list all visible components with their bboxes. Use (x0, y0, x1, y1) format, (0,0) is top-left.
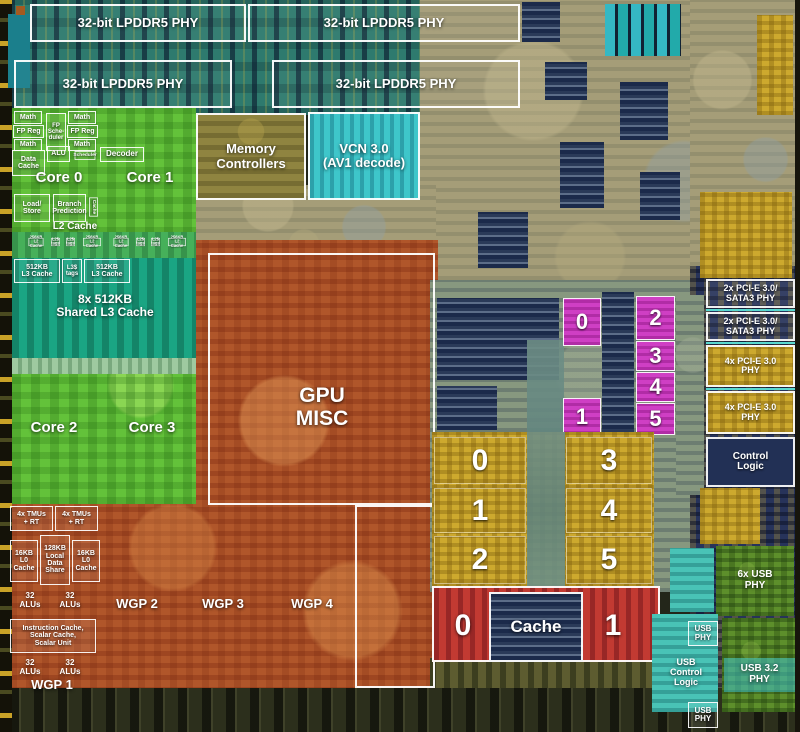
alus-label: 32 ALUs (54, 590, 86, 612)
pcie-phy-box-1: 4x PCI-E 3.0 PHY (706, 345, 795, 387)
lds-chip: 128KB Local Data Share (40, 535, 70, 585)
core0-label: Core 0 (28, 168, 90, 188)
lpddr5-phy-label-2: 32-bit LPDDR5 PHY (248, 4, 520, 42)
right-edge-strip (795, 0, 800, 732)
tmus-chip: 4x TMUs + RT (55, 506, 98, 531)
fpu-math-chip: Math (14, 111, 42, 124)
pink-gap-stripes (602, 292, 634, 438)
cu-pink-3: 3 (636, 341, 675, 371)
gold-block-right (700, 192, 792, 278)
scheduler-chip: Scheduler (75, 151, 96, 160)
gpu-cache-label: Cache (489, 592, 583, 662)
wgp3-label: WGP 3 (198, 596, 248, 612)
usb-phy-bottom-chip: USB PHY (688, 702, 718, 728)
shared-l3-label: 8x 512KB Shared L3 Cache (35, 290, 175, 322)
branch-prediction-chip: Branch Prediction (53, 194, 86, 222)
cu-yellow-3: 3 (566, 437, 652, 484)
gpu-cache-0-label: 0 (440, 602, 486, 650)
cu-pink-4: 4 (636, 372, 675, 402)
l2-tags-chip: L2$ tags (151, 238, 160, 246)
lpddr5-phy-label-4: 32-bit LPDDR5 PHY (272, 60, 520, 108)
fabric-block (640, 172, 680, 220)
fabric-block (560, 142, 604, 208)
wgp4-label: WGP 4 (287, 596, 337, 612)
fpu-math-chip: Math (68, 139, 96, 151)
l0-cache-chip: 16KB L0 Cache (10, 540, 38, 582)
cu-yellow-4: 4 (566, 488, 652, 533)
alus-label: 32 ALUs (54, 657, 86, 679)
fabric-block (620, 82, 668, 140)
io-separator (706, 388, 795, 390)
decoder-chip: Decoder (100, 147, 144, 162)
l2-256kb-chip: 256KB L2 Cache (29, 238, 44, 246)
top-left-orange-chip (16, 6, 25, 15)
cu-yellow-2: 2 (434, 536, 526, 584)
fabric-block (478, 212, 528, 268)
core2-label: Core 2 (24, 418, 84, 438)
teal-grid-block (605, 4, 681, 56)
cpu-divider-band (12, 358, 196, 374)
pcie-sata-phy-box-1: 2x PCI-E 3.0/ SATA3 PHY (706, 279, 795, 308)
l2-tags-chip: L2$ tags (51, 238, 60, 246)
l2-256kb-chip: 256KB L2 Cache (168, 238, 186, 246)
gpu-misc-label: GPU MISC (268, 382, 376, 434)
fabric-block (545, 62, 587, 100)
lpddr5-phy-label-3: 32-bit LPDDR5 PHY (14, 60, 232, 108)
cu-pink-2: 2 (636, 296, 675, 340)
core3-label: Core 3 (120, 418, 184, 438)
usb-control-label: USB Control Logic (660, 652, 712, 694)
fabric-block (522, 2, 560, 42)
teal-striped-block (670, 548, 714, 612)
gpu-misc-box (208, 253, 435, 505)
gold-block-above-usb (700, 488, 760, 544)
cu-yellow-center-smear (527, 432, 565, 588)
l2-256kb-chip: 256KB L2 Cache (83, 238, 101, 246)
gold-block-top-right (757, 15, 793, 115)
control-logic-box: Control Logic (706, 437, 795, 487)
usb-6x-label: 6x USB PHY (716, 560, 794, 602)
l2-tags-chip: L2$ tags (136, 238, 145, 246)
cu-pink-5: 5 (636, 403, 675, 435)
l3-tags-chip: L3$ tags (62, 259, 82, 283)
l2-tags-chip: L2$ tags (66, 238, 75, 246)
alu-chip: ALU (47, 146, 70, 162)
cu-yellow-5: 5 (566, 536, 652, 584)
fabric-block (437, 386, 497, 430)
l3-512kb-chip: 512KB L3 Cache (84, 259, 130, 283)
cu-pink-1: 1 (563, 398, 601, 435)
pcie-phy-box-2: 4x PCI-E 3.0 PHY (706, 391, 795, 434)
fpu-fpreg-chip: FP Reg (67, 125, 98, 138)
core1-label: Core 1 (118, 168, 182, 188)
usb-32-label: USB 3.2 PHY (724, 660, 795, 690)
cu-yellow-1: 1 (434, 488, 526, 533)
memory-controllers-label: Memory Controllers (196, 113, 306, 200)
l3-512kb-chip: 512KB L3 Cache (14, 259, 60, 283)
pcie-sata-phy-box-2: 2x PCI-E 3.0/ SATA3 PHY (706, 312, 795, 341)
l2-cache-label: L2 Cache (40, 220, 110, 234)
cu-pink-0: 0 (563, 298, 601, 346)
usb-phy-top-chip: USB PHY (688, 621, 718, 646)
l0-cache-chip: 16KB L0 Cache (72, 540, 100, 582)
tmus-chip: 4x TMUs + RT (10, 506, 53, 531)
vcn-label: VCN 3.0 (AV1 decode) (308, 112, 420, 200)
wgp1-label: WGP 1 (28, 678, 76, 693)
load-store-chip: Load/ Store (14, 194, 50, 222)
gpu-misc-box-lower (355, 505, 435, 688)
fabric-column (676, 295, 704, 495)
cu-yellow-0: 0 (434, 437, 526, 484)
gpu-cache-1-label: 1 (590, 602, 636, 650)
io-separator (706, 342, 795, 344)
fpu-fpreg-chip: FP Reg (13, 125, 44, 138)
l2-256kb-chip: 256KB L2 Cache (114, 238, 129, 246)
wgp2-label: WGP 2 (112, 596, 162, 612)
alus-label: 32 ALUs (14, 657, 46, 679)
io-separator (706, 309, 795, 311)
l2-vertical-chip: Cache (89, 197, 98, 216)
alus-label: 32 ALUs (14, 590, 46, 612)
die-shot: 32-bit LPDDR5 PHY 32-bit LPDDR5 PHY 32-b… (0, 0, 800, 732)
lpddr5-phy-label-1: 32-bit LPDDR5 PHY (30, 4, 246, 42)
instruction-cache-chip: Instruction Cache, Scalar Cache, Scalar … (10, 619, 96, 653)
fpu-math-chip: Math (68, 111, 96, 124)
